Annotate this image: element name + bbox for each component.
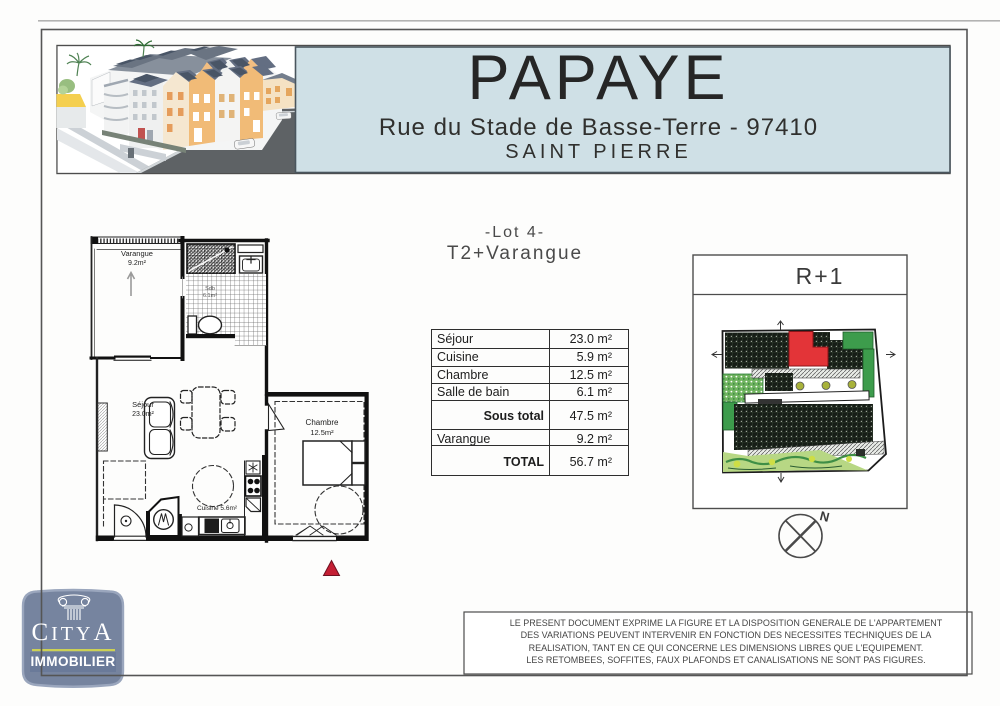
svg-text:Cuisine 5.6m²: Cuisine 5.6m² [197, 505, 238, 512]
svg-text:12.5m²: 12.5m² [310, 428, 334, 437]
svg-text:9.2m²: 9.2m² [128, 260, 147, 267]
svg-text:23.0m²: 23.0m² [132, 411, 154, 418]
svg-text:Chambre: Chambre [306, 418, 339, 427]
svg-text:Sdb: Sdb [205, 286, 215, 292]
svg-text:Varangue: Varangue [121, 249, 153, 258]
svg-text:6.1m²: 6.1m² [203, 293, 217, 299]
svg-text:Séjour: Séjour [132, 400, 154, 409]
